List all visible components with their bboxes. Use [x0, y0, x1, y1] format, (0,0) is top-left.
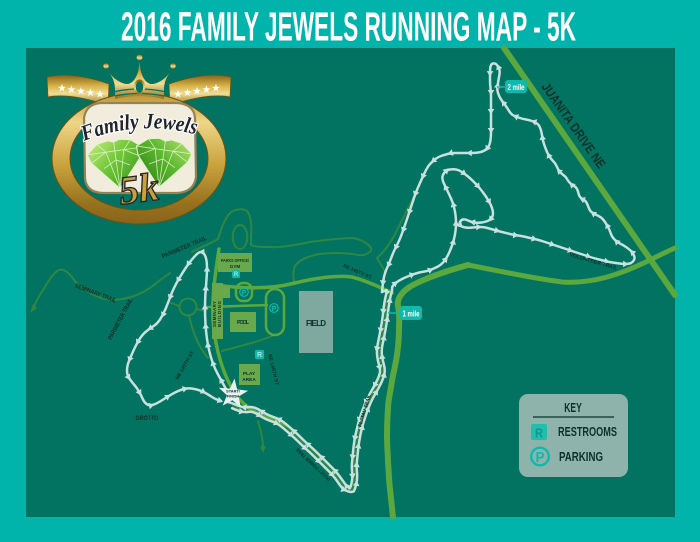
- svg-text:BUILDING: BUILDING: [217, 300, 222, 327]
- svg-text:R: R: [535, 426, 544, 441]
- svg-text:★: ★: [67, 84, 77, 96]
- svg-text:★: ★: [211, 82, 221, 94]
- svg-text:AREA: AREA: [242, 377, 256, 383]
- svg-text:★: ★: [183, 87, 193, 99]
- svg-text:P: P: [242, 290, 247, 297]
- svg-text:PARKING: PARKING: [559, 450, 603, 464]
- svg-text:2 mile: 2 mile: [508, 83, 525, 92]
- svg-text:POOL: POOL: [237, 320, 250, 326]
- svg-text:GYM: GYM: [230, 264, 241, 269]
- svg-text:★: ★: [57, 82, 67, 94]
- svg-text:1 mile: 1 mile: [403, 309, 420, 319]
- svg-text:5k: 5k: [116, 164, 161, 214]
- svg-text:P: P: [272, 306, 277, 313]
- svg-text:FIELD: FIELD: [306, 319, 326, 328]
- svg-text:★: ★: [202, 84, 212, 96]
- svg-text:FINISH: FINISH: [227, 394, 240, 399]
- svg-text:R: R: [234, 272, 239, 278]
- svg-text:PARKS OFFICE/: PARKS OFFICE/: [221, 258, 250, 263]
- svg-text:PLAY: PLAY: [243, 371, 256, 377]
- svg-text:★: ★: [86, 87, 96, 99]
- svg-text:★: ★: [76, 85, 86, 97]
- svg-text:R: R: [257, 352, 262, 359]
- svg-text:KEY: KEY: [564, 400, 582, 415]
- svg-text:RESTROOMS: RESTROOMS: [558, 425, 617, 439]
- svg-text:2016 FAMILY JEWELS RUNNING MAP: 2016 FAMILY JEWELS RUNNING MAP - 5K: [121, 4, 576, 50]
- svg-text:GROTTO: GROTTO: [136, 415, 159, 422]
- svg-text:★: ★: [192, 85, 202, 97]
- svg-text:P: P: [536, 450, 545, 466]
